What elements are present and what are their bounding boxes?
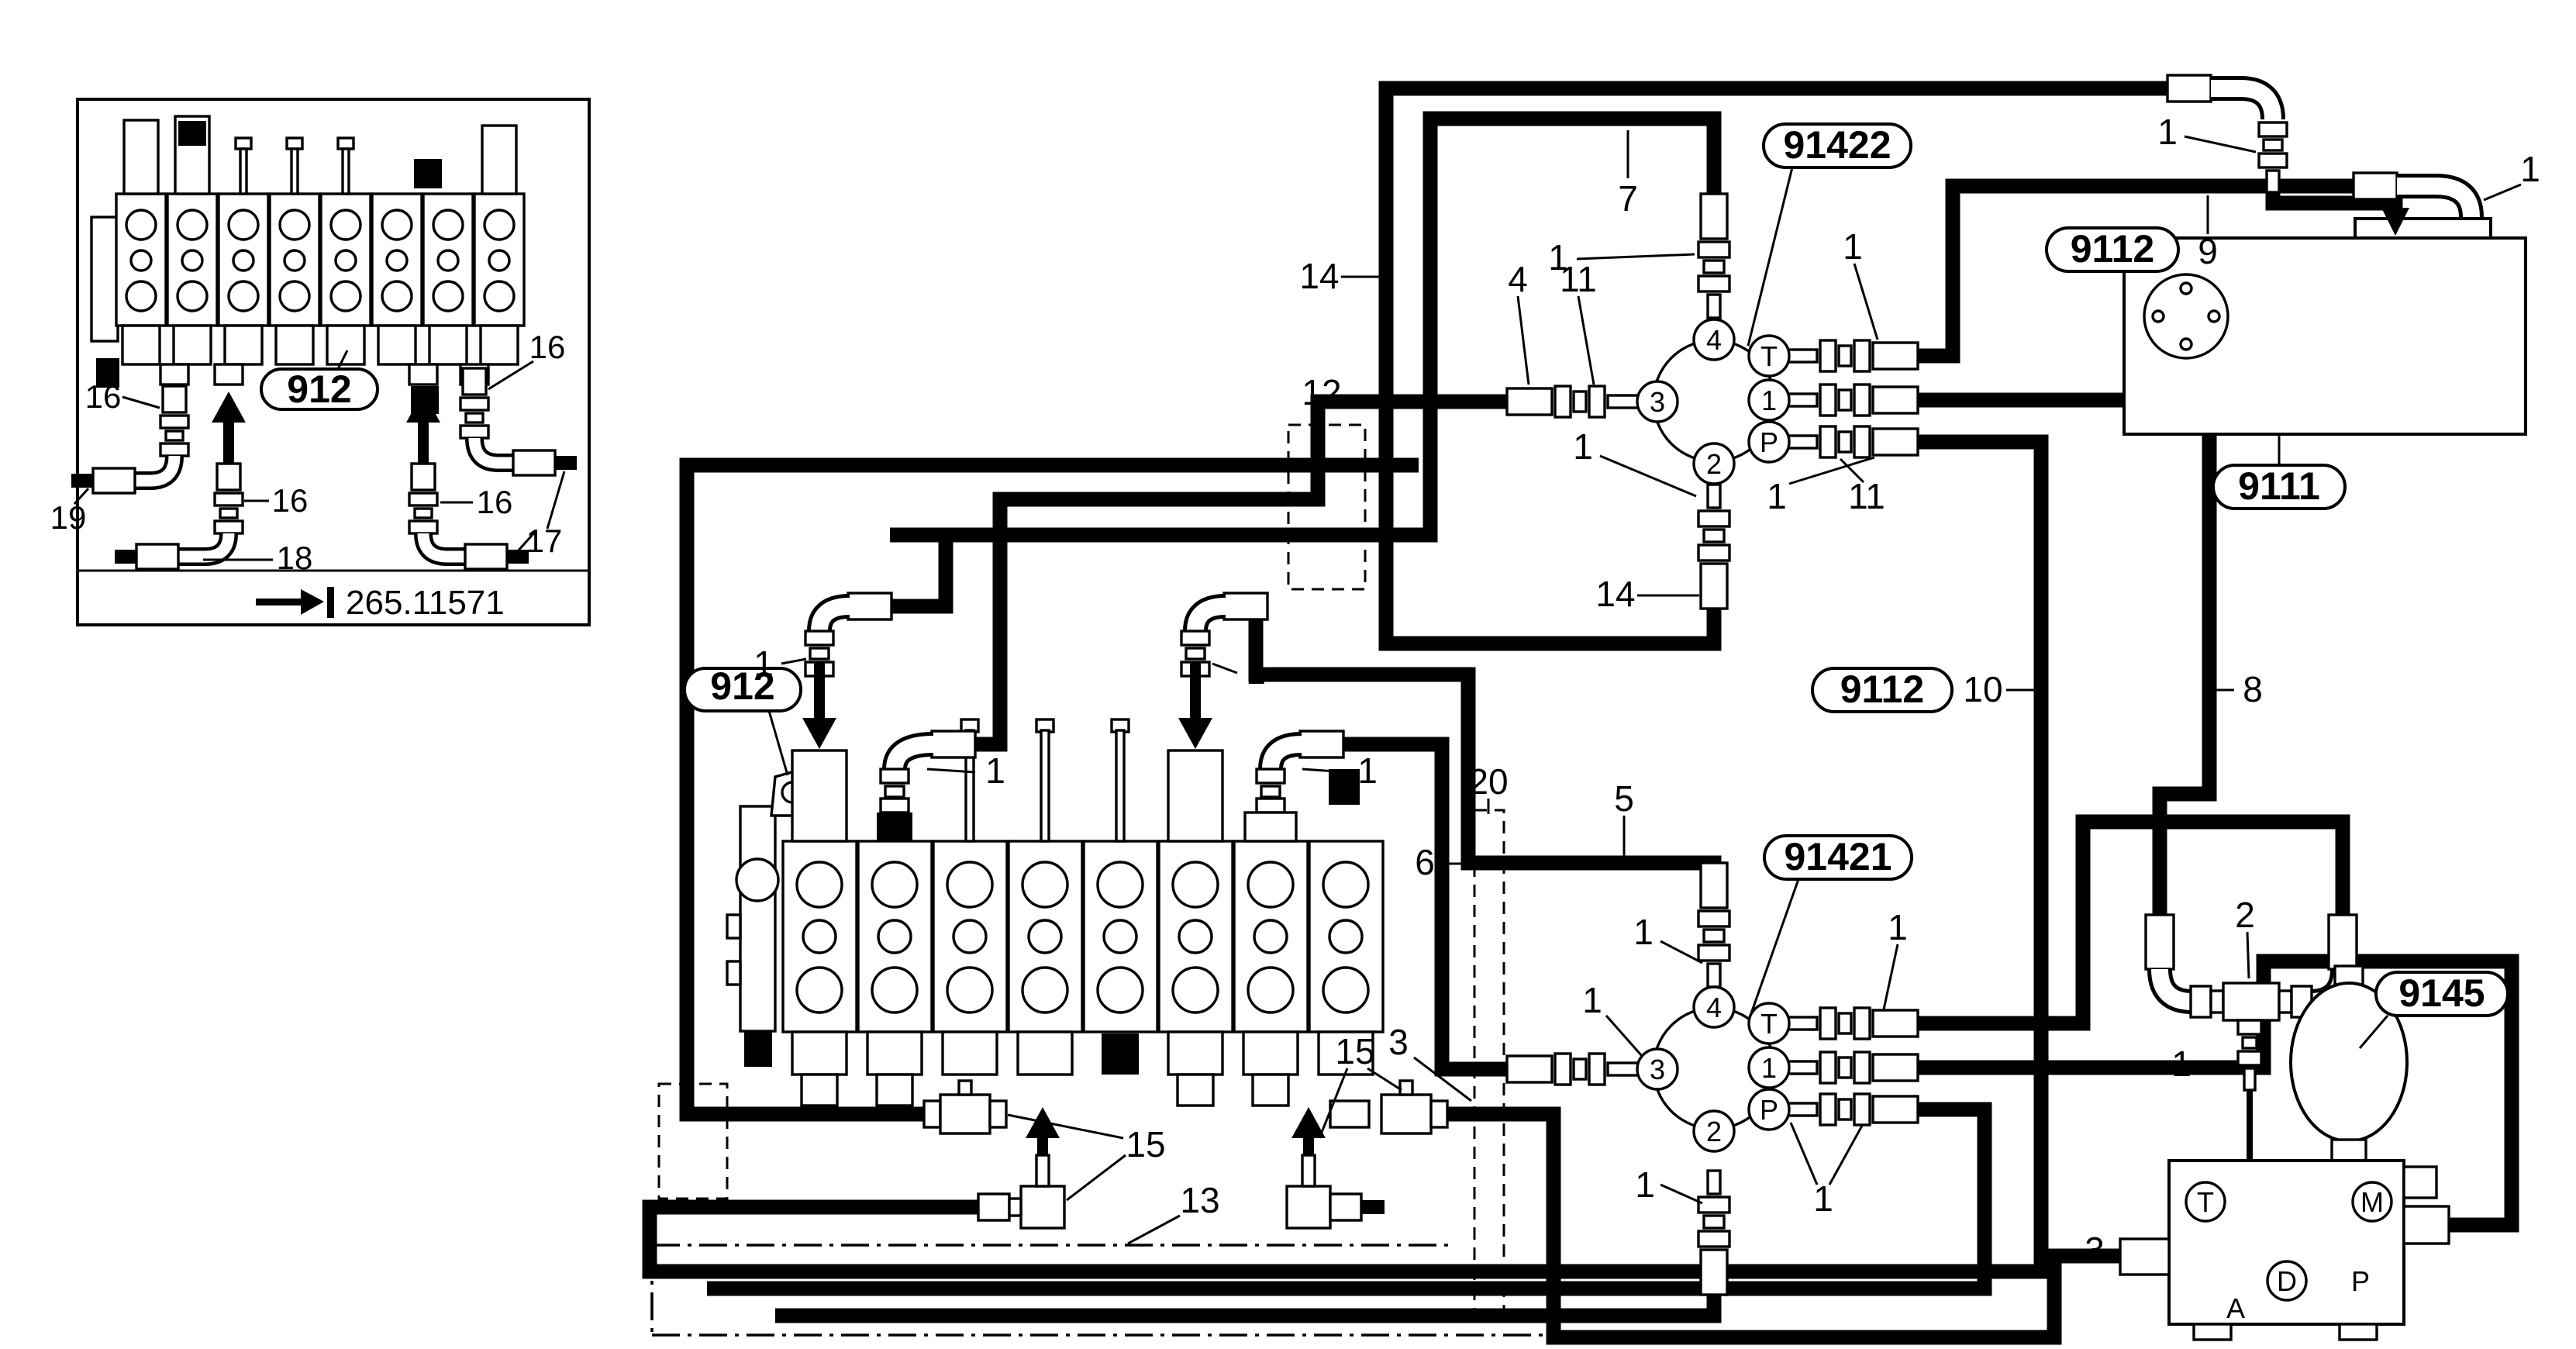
port-letter-4-top: 4 <box>1706 324 1722 356</box>
callout-10: 10 <box>1963 669 2002 709</box>
callout-14-a: 14 <box>1299 256 1339 296</box>
callout-16-d: 16 <box>529 329 566 365</box>
port-letter-1-bot: 1 <box>1761 1052 1777 1084</box>
callout-1-f4: 1 <box>1357 750 1378 791</box>
callout-18: 18 <box>277 540 313 576</box>
hydraulic-circuit-diagram: 16 16 16 16 19 18 17 912 <box>0 0 2576 1349</box>
callout-15-b: 15 <box>1335 1031 1374 1071</box>
callout-9: 9 <box>2198 231 2218 271</box>
part-label-9145: 9145 <box>2398 971 2485 1015</box>
callout-1-f2: 1 <box>985 750 1005 791</box>
main-valve-assembly: 912 <box>685 664 1383 1106</box>
callout-1-k5: 1 <box>1813 1178 1833 1219</box>
callout-1-e2: 1 <box>2520 149 2540 189</box>
callout-6: 6 <box>1415 842 1435 882</box>
callout-13: 13 <box>1180 1180 1219 1220</box>
callout-20: 20 <box>1468 761 1508 802</box>
callout-1-k4: 1 <box>1635 1164 1655 1205</box>
callout-14-b: 14 <box>1595 574 1635 614</box>
callout-1-j4: 1 <box>1767 476 1787 516</box>
hose-3 <box>1446 1114 2126 1337</box>
hose-14 <box>1386 88 2212 643</box>
callout-1-k1: 1 <box>1633 912 1654 952</box>
port-letter-p-bot: P <box>1760 1094 1778 1126</box>
port-letter-3-top: 3 <box>1650 386 1665 418</box>
port-letter-4-bot: 4 <box>1706 992 1722 1023</box>
part-label-91421: 91421 <box>1784 835 1891 878</box>
dashed-box-12 <box>1288 425 1365 589</box>
callout-19: 19 <box>50 499 87 536</box>
port-letter-2-top: 2 <box>1706 448 1722 480</box>
callout-1-f3: 1 <box>1246 651 1266 692</box>
port-letter-1-top: 1 <box>1761 385 1777 416</box>
hose-8 <box>1915 400 2209 919</box>
callout-16-c: 16 <box>477 484 513 520</box>
part-label-912-inset: 912 <box>287 367 351 411</box>
port-letter-2-bot: 2 <box>1706 1116 1722 1147</box>
callout-16-a: 16 <box>85 378 122 415</box>
part-label-9112-top: 9112 <box>2071 227 2154 271</box>
pump-port-t: T <box>2197 1186 2214 1218</box>
junction-91421: 4 T 1 P 3 2 91421 5 20 6 1 1 1 1 1 <box>1415 761 1918 1295</box>
tank-9111: 1 1 9112 9 9111 <box>2047 75 2540 509</box>
callout-3-b: 3 <box>2085 1230 2105 1270</box>
callout-1-j3: 1 <box>1573 426 1593 467</box>
callout-2: 2 <box>2235 895 2255 935</box>
callout-1-f1: 1 <box>753 643 774 684</box>
callout-7: 7 <box>1618 178 1638 219</box>
callout-1-e1: 1 <box>2157 112 2178 152</box>
part-label-9112-mid: 9112 <box>1840 668 1924 711</box>
callout-15-a: 15 <box>1126 1124 1165 1164</box>
callout-1-k2: 1 <box>1888 907 1908 947</box>
callout-5: 5 <box>1614 778 1634 819</box>
pump-port-m: M <box>2360 1186 2384 1218</box>
pump-port-p: P <box>2351 1265 2370 1297</box>
inset-panel: 16 16 16 16 19 18 17 912 <box>50 99 589 625</box>
callout-1-j1: 1 <box>1548 237 1568 278</box>
callout-12: 12 <box>1302 372 1341 412</box>
callout-8: 8 <box>2243 669 2263 709</box>
callout-1-j2: 1 <box>1843 226 1863 267</box>
callout-4: 4 <box>1508 259 1528 299</box>
port-letter-t-top: T <box>1760 340 1778 372</box>
port-letter-3-bot: 3 <box>1650 1054 1665 1085</box>
reference-number: 265.11571 <box>346 584 505 622</box>
port-letter-t-bot: T <box>1760 1008 1778 1040</box>
pump-port-d: D <box>2277 1265 2297 1297</box>
hose-7-drop <box>890 535 946 606</box>
callout-17: 17 <box>526 523 563 559</box>
callout-1-pump: 1 <box>2171 1044 2191 1084</box>
port-letter-p-top: P <box>1760 426 1778 458</box>
part-label-9111: 9111 <box>2238 464 2320 508</box>
callout-1-k3: 1 <box>1582 980 1602 1020</box>
part-label-91422: 91422 <box>1783 123 1891 167</box>
callout-11-b: 11 <box>1848 476 1885 516</box>
callout-16-b: 16 <box>272 482 309 519</box>
pump-port-a: A <box>2226 1292 2245 1324</box>
callout-3-a: 3 <box>1388 1022 1409 1062</box>
